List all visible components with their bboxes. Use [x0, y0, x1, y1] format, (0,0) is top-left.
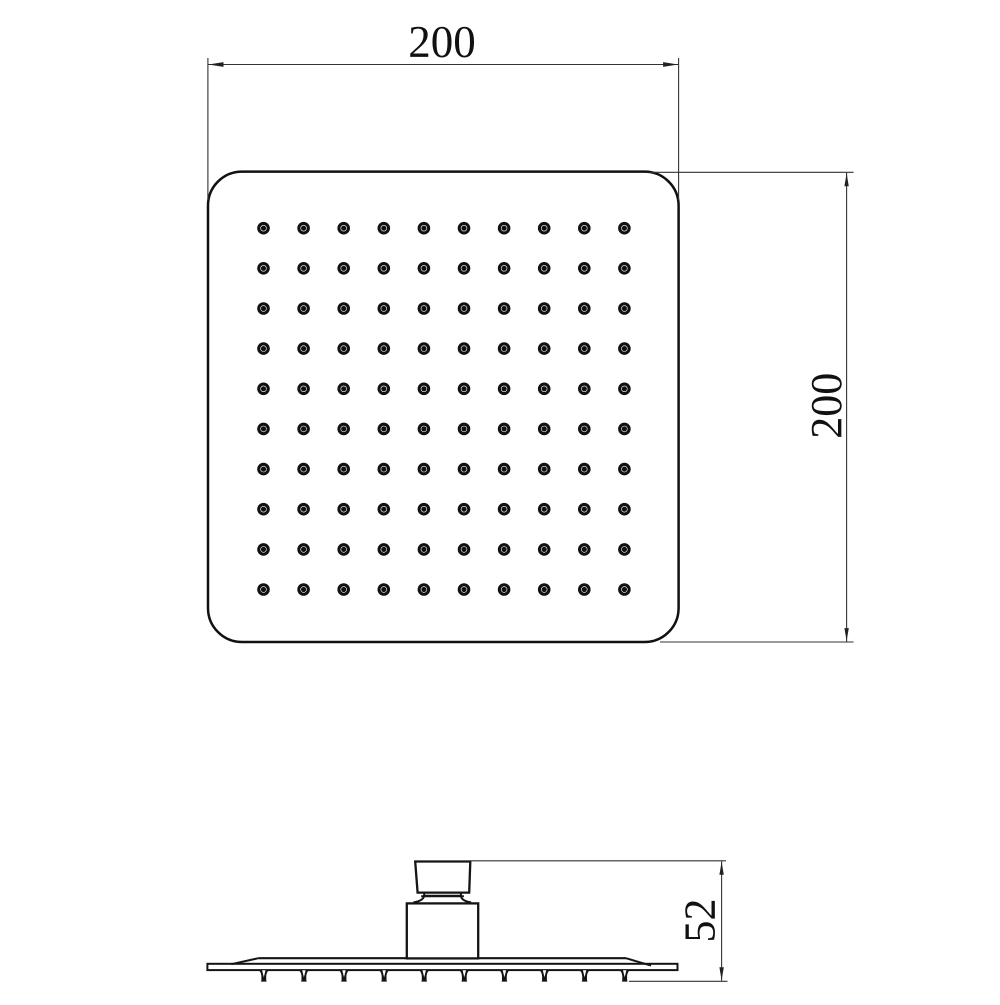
svg-text:200: 200 — [802, 373, 851, 439]
svg-text:200: 200 — [408, 17, 476, 67]
svg-text:52: 52 — [676, 899, 725, 943]
